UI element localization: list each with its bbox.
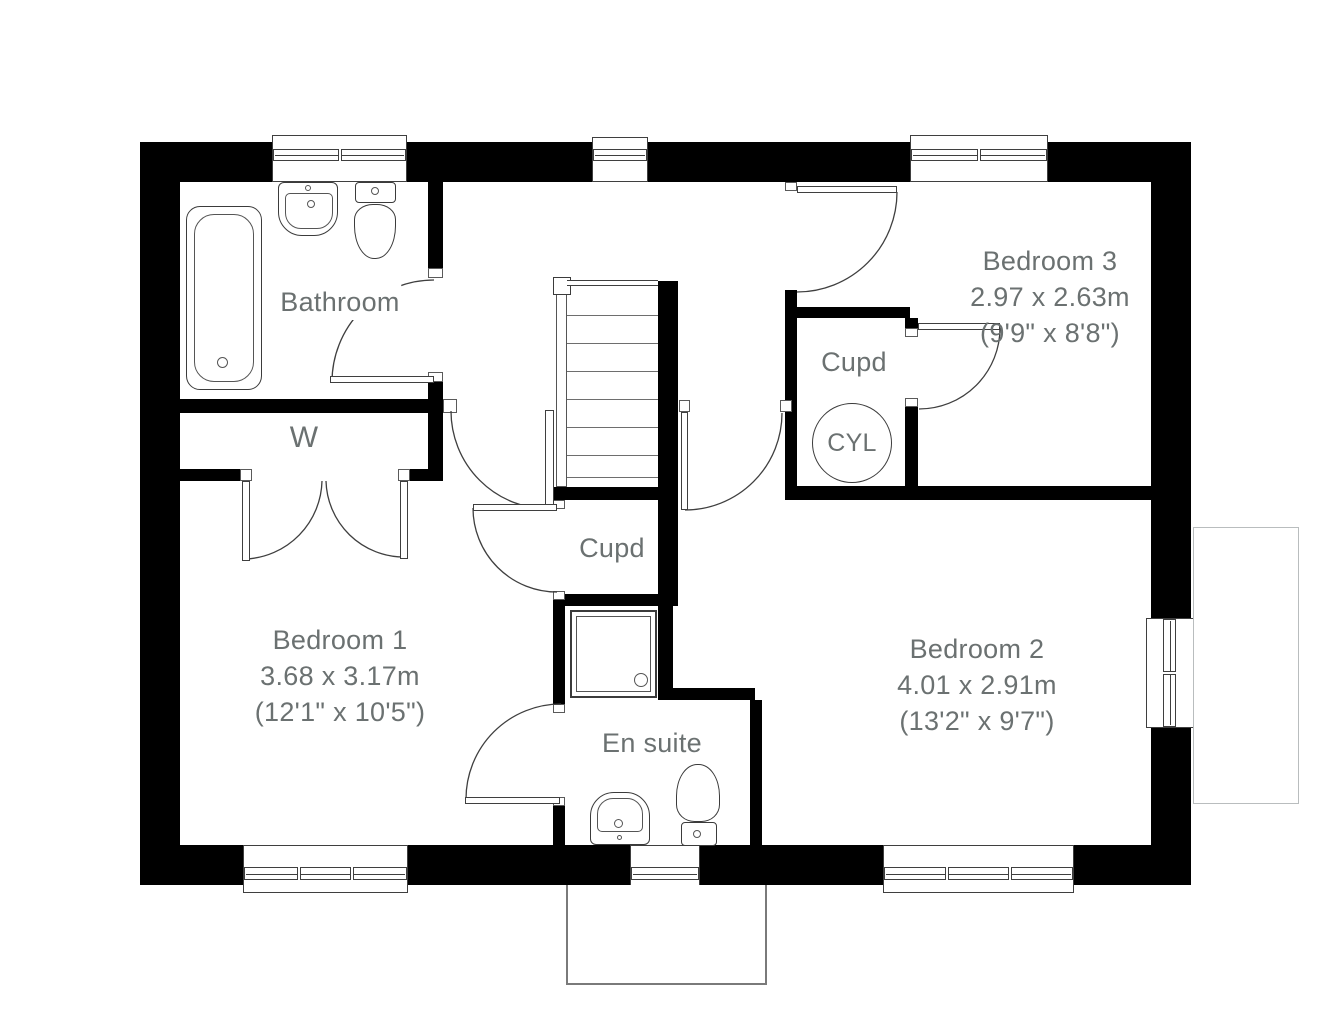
door-leaf-bedroom2 [681, 412, 688, 510]
bedroom2-size-imperial: (13'2" x 9'7") [897, 703, 1057, 739]
room-label-cyl-cupboard: Cupd [821, 344, 887, 380]
bedroom3-size-imperial: (9'9" x 8'8") [970, 315, 1130, 351]
door-leaf-bathroom [330, 376, 434, 383]
room-label-cupboard: Cupd [579, 530, 645, 566]
room-label-bedroom3: Bedroom 3 2.97 x 2.63m (9'9" x 8'8") [970, 243, 1130, 351]
bedroom1-size-metric: 3.68 x 3.17m [255, 658, 426, 694]
room-label-ensuite: En suite [602, 725, 702, 761]
door-swing-arc-cupboard [473, 508, 557, 592]
bedroom1-name: Bedroom 1 [255, 622, 426, 658]
door-swing-arc-bedroom3 [797, 192, 897, 292]
room-label-bedroom2: Bedroom 2 4.01 x 2.91m (13'2" x 9'7") [897, 631, 1057, 739]
bedroom2-size-metric: 4.01 x 2.91m [897, 667, 1057, 703]
door-swing-arc-wardrobe-left [246, 481, 322, 559]
door-swing-arc-wardrobe-right [326, 481, 404, 557]
door-swing-arc-ensuite [466, 704, 561, 799]
bedroom2-name: Bedroom 2 [897, 631, 1057, 667]
cupboard-label-text: Cupd [579, 533, 645, 563]
door-leaf-bedroom1 [545, 410, 554, 509]
door-leaf-bedroom3 [797, 186, 897, 193]
room-label-wardrobe: W [290, 419, 319, 457]
ensuite-label-text: En suite [602, 728, 702, 758]
door-leaf-ensuite [465, 797, 560, 804]
room-label-bathroom: Bathroom [278, 284, 401, 320]
bedroom3-size-metric: 2.97 x 2.63m [970, 279, 1130, 315]
door-leaf-wardrobe-left [242, 481, 250, 561]
adjacent-structure-outline [1193, 527, 1299, 804]
room-label-bedroom1: Bedroom 1 3.68 x 3.17m (12'1" x 10'5") [255, 622, 426, 730]
floor-plan: CYL Bathroom W Cupd Cupd En suite Bedroo [0, 0, 1333, 1027]
door-leaf-wardrobe-right [400, 481, 408, 559]
porch-outline [566, 885, 767, 985]
door-swing-arcs [0, 0, 1333, 1027]
door-leaf-cupboard [473, 504, 557, 511]
door-swing-arc-bedroom2 [685, 413, 782, 510]
bedroom1-size-imperial: (12'1" x 10'5") [255, 694, 426, 730]
door-swing-arc-bedroom1 [451, 411, 549, 509]
bathroom-label-text: Bathroom [280, 287, 399, 317]
cyl-cupboard-label-text: Cupd [821, 347, 887, 377]
wardrobe-label-text: W [290, 421, 319, 454]
bedroom3-name: Bedroom 3 [970, 243, 1130, 279]
